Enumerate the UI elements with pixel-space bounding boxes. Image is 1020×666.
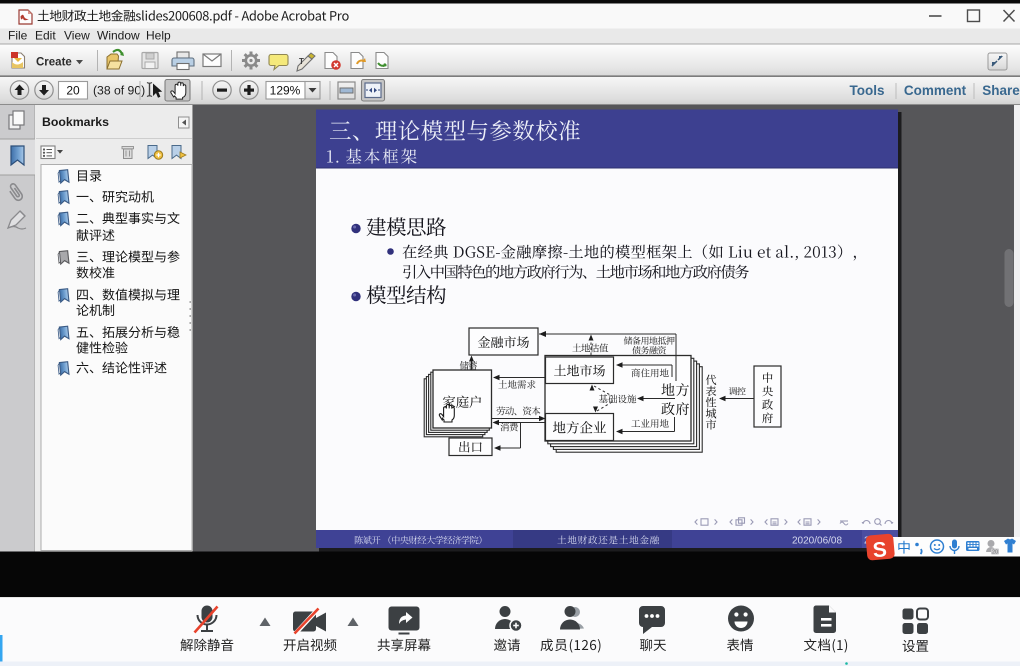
svg-text:Window: Window (97, 29, 140, 43)
svg-text:20: 20 (992, 550, 998, 556)
svg-text:View: View (64, 29, 90, 43)
svg-text:(38 of 90): (38 of 90) (93, 84, 145, 98)
svg-text:T: T (299, 57, 304, 66)
svg-text:File: File (8, 29, 28, 43)
svg-text:20: 20 (66, 84, 80, 98)
svg-text:Edit: Edit (35, 29, 56, 43)
svg-text:S: S (872, 538, 888, 562)
svg-text:Tools: Tools (850, 83, 885, 98)
svg-text:Share: Share (982, 83, 1020, 98)
svg-text:Comment: Comment (904, 83, 967, 98)
svg-text:Create: Create (36, 57, 72, 69)
svg-text:Bookmarks: Bookmarks (42, 115, 109, 129)
svg-text:129%: 129% (270, 84, 301, 98)
svg-text:2020/06/08: 2020/06/08 (792, 536, 842, 547)
svg-text:Help: Help (146, 29, 171, 43)
